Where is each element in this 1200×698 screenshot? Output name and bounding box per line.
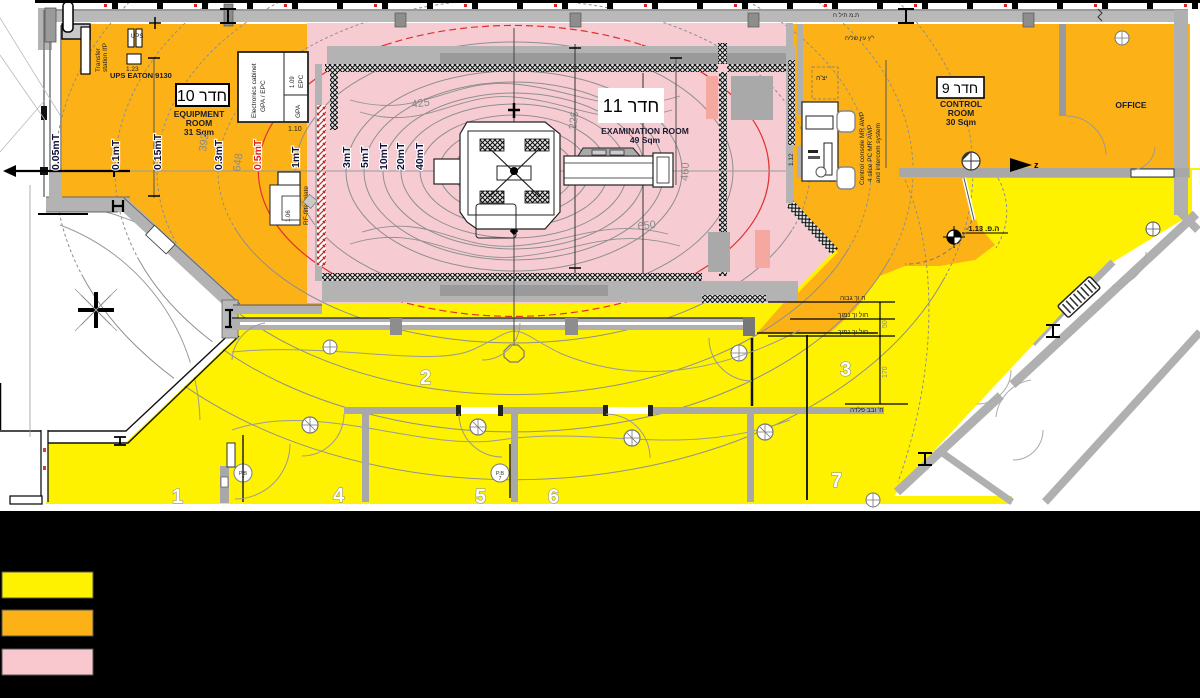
svg-text:and intercom system: and intercom system [875, 123, 882, 183]
svg-text:ח' ובב פלדה: ח' ובב פלדה [850, 406, 884, 414]
svg-text:393: 393 [197, 133, 211, 153]
svg-text:425: 425 [411, 97, 431, 111]
svg-text:4 slice PC MR AWP: 4 slice PC MR AWP [867, 125, 874, 182]
svg-text:1: 1 [172, 486, 183, 508]
svg-text:170: 170 [882, 366, 889, 378]
svg-text:ח וך גבוה: ח וך גבוה [840, 295, 866, 302]
svg-text:-1.13 .ה.פ: -1.13 .ה.פ [966, 224, 999, 233]
svg-text:0.05mT: 0.05mT [50, 133, 62, 170]
svg-text:GPA / EPC: GPA / EPC [260, 80, 267, 112]
svg-text:4: 4 [333, 485, 345, 507]
svg-text:GPA: GPA [295, 104, 302, 118]
svg-text:650: 650 [637, 219, 657, 233]
svg-text:z: z [1034, 160, 1039, 170]
svg-text:1.06: 1.06 [286, 210, 292, 222]
svg-text:0.5mT: 0.5mT [252, 139, 264, 170]
svg-text:50: 50 [882, 320, 889, 328]
svg-text:1mT: 1mT [290, 146, 302, 168]
svg-text:6: 6 [548, 486, 559, 508]
svg-text:226: 226 [567, 111, 581, 131]
svg-text:5mT: 5mT [359, 146, 371, 168]
svg-text:1.12: 1.12 [788, 153, 795, 166]
svg-text:40mT: 40mT [414, 142, 426, 170]
svg-text:3: 3 [840, 359, 851, 381]
svg-text:OFFICE: OFFICE [1115, 100, 1146, 110]
svg-text:648: 648 [231, 153, 245, 173]
svg-text:10mT: 10mT [378, 142, 390, 170]
svg-text:7: 7 [831, 470, 842, 492]
svg-text:Control console MR AWP: Control console MR AWP [859, 112, 866, 185]
svg-text:49 Sqm: 49 Sqm [630, 135, 661, 145]
svg-text:9 חדר: 9 חדר [942, 80, 978, 96]
svg-text:UPS EATON 9130: UPS EATON 9130 [110, 71, 172, 80]
svg-text:חול וך נמוך: חול וך נמוך [838, 328, 868, 336]
svg-text:10 חדר: 10 חדר [177, 88, 227, 105]
svg-text:0.1mT: 0.1mT [110, 139, 122, 170]
svg-text:460: 460 [679, 162, 692, 181]
svg-text:חול וך נמוך: חול וך נמוך [838, 311, 868, 319]
svg-text:EPC: EPC [298, 74, 305, 88]
svg-text:ת.מ תיל ח: ת.מ תיל ח [833, 11, 859, 19]
svg-text:יצ'ה: יצ'ה [816, 75, 828, 82]
svg-text:Transfer: Transfer [95, 47, 102, 72]
svg-text:1.10: 1.10 [288, 126, 302, 133]
svg-text:3mT: 3mT [341, 146, 353, 168]
svg-text:2: 2 [420, 367, 431, 389]
svg-text:5: 5 [475, 486, 486, 508]
svg-text:11 חדר: 11 חדר [603, 96, 659, 116]
svg-text:י"ץ עין שליח: י"ץ עין שליח [845, 34, 875, 42]
svg-text:0.3mT: 0.3mT [213, 139, 225, 170]
svg-text:Electronics cabinet: Electronics cabinet [251, 63, 258, 118]
svg-text:20mT: 20mT [395, 142, 407, 170]
svg-text:1.09: 1.09 [290, 76, 296, 88]
svg-text:UPS: UPS [131, 34, 143, 40]
svg-text:station IfP: station IfP [102, 43, 109, 72]
svg-text:7: 7 [499, 476, 502, 482]
svg-text:0.15mT: 0.15mT [152, 133, 164, 170]
svg-text:30 Sqm: 30 Sqm [946, 117, 977, 127]
